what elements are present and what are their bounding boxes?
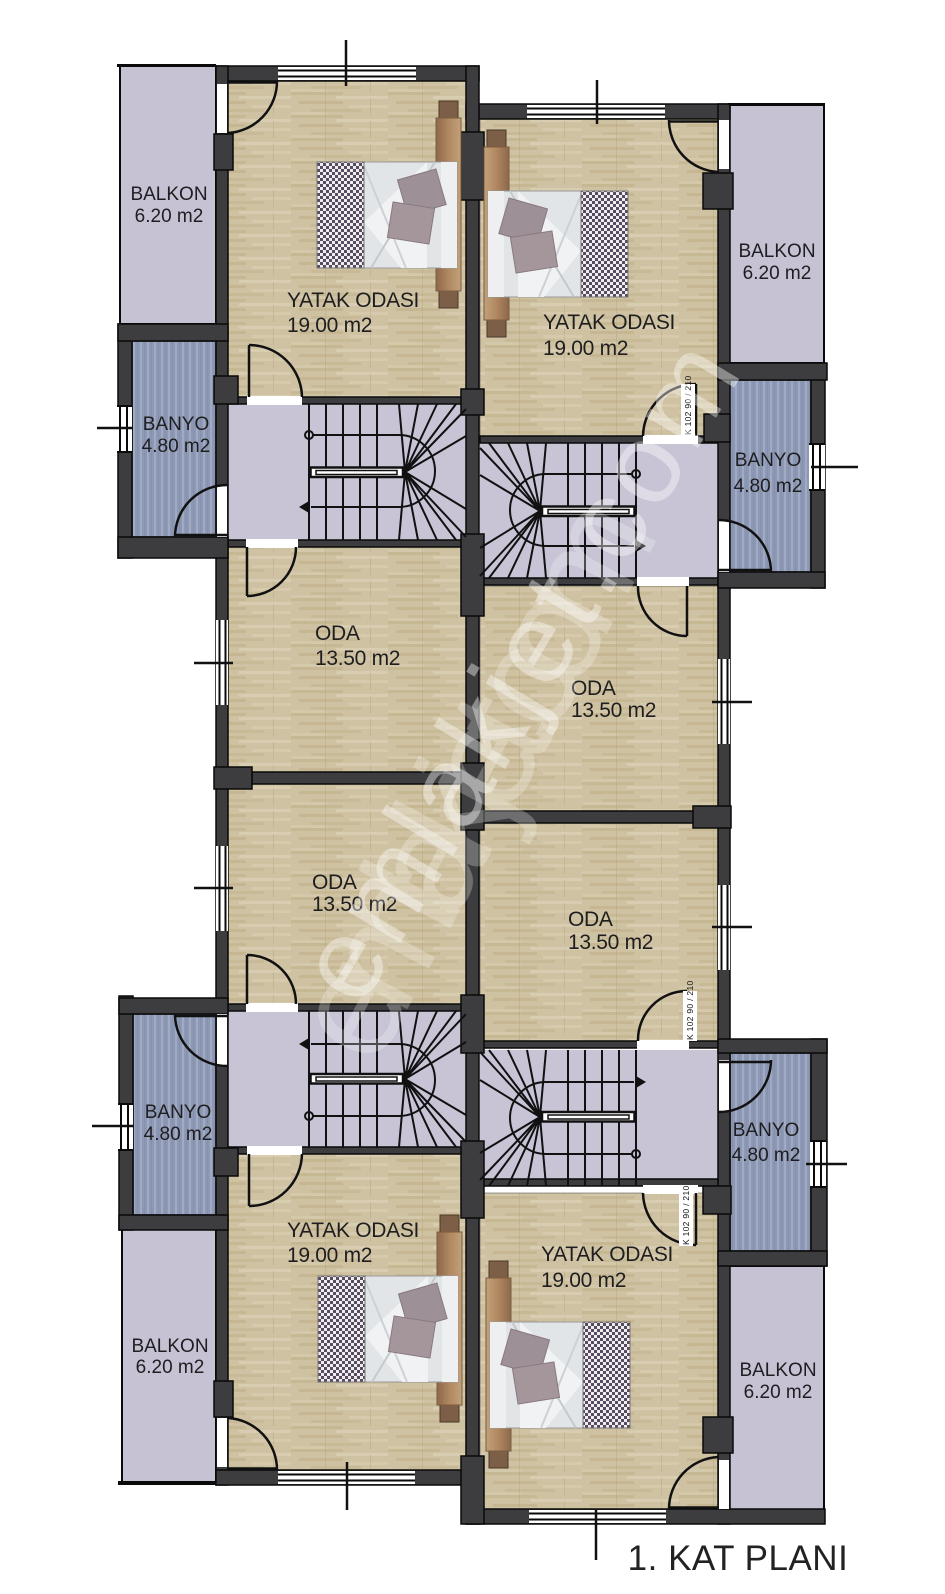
svg-text:19.00 m2: 19.00 m2 bbox=[287, 1244, 372, 1267]
svg-text:BALKON: BALKON bbox=[130, 184, 207, 205]
svg-text:1. KAT PLANI: 1. KAT PLANI bbox=[628, 1539, 849, 1578]
svg-text:4.80 m2: 4.80 m2 bbox=[734, 476, 803, 497]
svg-text:YATAK ODASI: YATAK ODASI bbox=[287, 289, 419, 312]
svg-text:13.50 m2: 13.50 m2 bbox=[315, 647, 400, 670]
svg-text:ODA: ODA bbox=[568, 908, 613, 931]
svg-text:6.20 m2: 6.20 m2 bbox=[743, 263, 812, 284]
svg-text:4.80 m2: 4.80 m2 bbox=[142, 436, 211, 457]
svg-text:BALKON: BALKON bbox=[739, 1360, 816, 1381]
svg-text:6.20 m2: 6.20 m2 bbox=[135, 206, 204, 227]
svg-text:BANYO: BANYO bbox=[145, 1102, 212, 1123]
svg-text:BANYO: BANYO bbox=[733, 1120, 800, 1141]
svg-text:BANYO: BANYO bbox=[735, 450, 802, 471]
svg-text:K 102 90 / 210: K 102 90 / 210 bbox=[685, 981, 695, 1041]
svg-text:BALKON: BALKON bbox=[131, 1336, 208, 1357]
svg-text:19.00 m2: 19.00 m2 bbox=[287, 314, 372, 337]
svg-text:19.00 m2: 19.00 m2 bbox=[541, 1269, 626, 1292]
svg-text:K 102 90 / 210: K 102 90 / 210 bbox=[681, 1186, 691, 1246]
svg-text:YATAK ODASI: YATAK ODASI bbox=[287, 1219, 419, 1242]
svg-text:4.80 m2: 4.80 m2 bbox=[732, 1145, 801, 1166]
svg-text:4.80 m2: 4.80 m2 bbox=[144, 1124, 213, 1145]
svg-text:ODA: ODA bbox=[315, 622, 360, 645]
svg-text:6.20 m2: 6.20 m2 bbox=[136, 1357, 205, 1378]
svg-text:6.20 m2: 6.20 m2 bbox=[744, 1382, 813, 1403]
svg-text:13.50 m2: 13.50 m2 bbox=[568, 931, 653, 954]
svg-text:BANYO: BANYO bbox=[143, 414, 210, 435]
svg-text:YATAK ODASI: YATAK ODASI bbox=[541, 1243, 673, 1266]
svg-text:BALKON: BALKON bbox=[738, 241, 815, 262]
svg-text:19.00 m2: 19.00 m2 bbox=[543, 337, 628, 360]
